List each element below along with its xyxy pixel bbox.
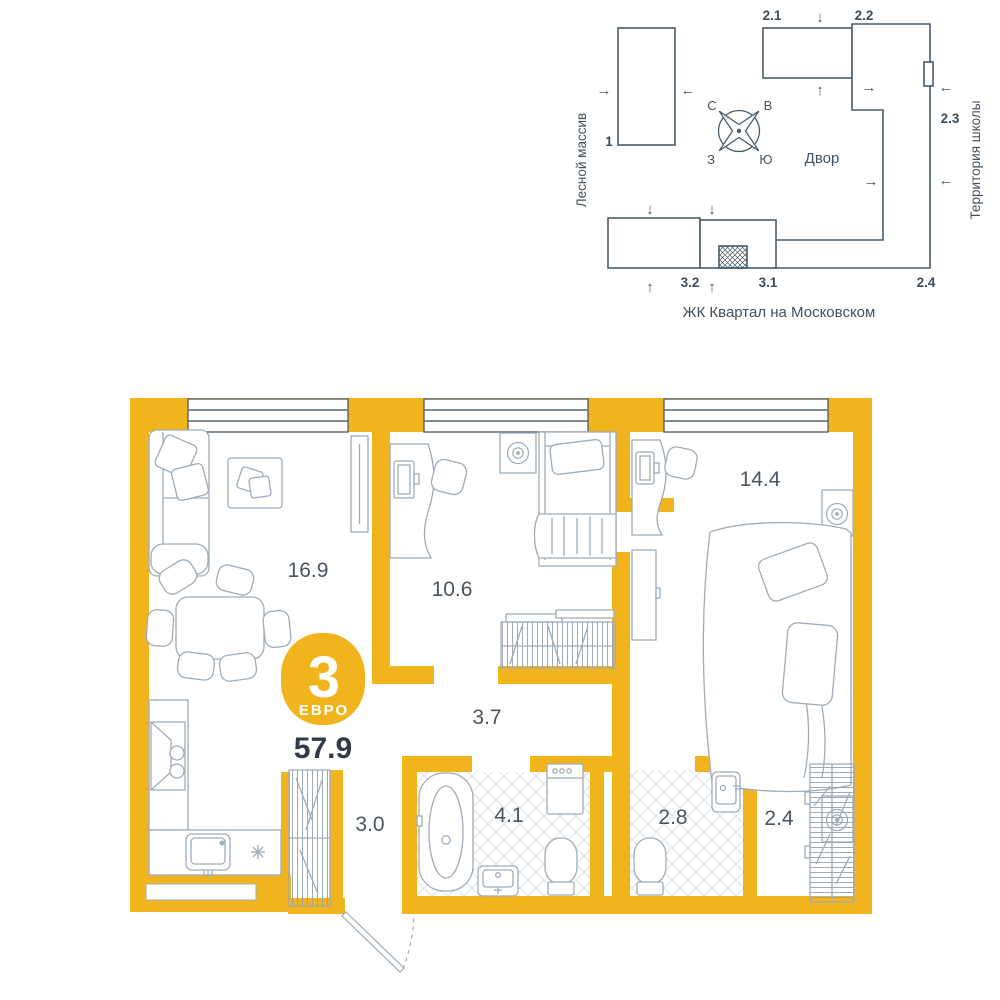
arrow-right-icon: →: [864, 173, 879, 190]
wardrobe-room-furniture: [805, 764, 854, 902]
wardrobe-knob: [805, 792, 810, 804]
dining-chair: [214, 563, 255, 597]
room-label-toilet: 2.8: [658, 806, 687, 829]
bed-pillow: [549, 439, 604, 475]
compass-north: С: [707, 98, 716, 113]
site-label-building-2-1: 2.1: [763, 8, 782, 23]
room-label-wardrobe: 2.4: [764, 807, 794, 830]
monitor-stand: [654, 463, 659, 473]
arrow-right-icon: →: [862, 79, 877, 96]
washing-machine: [547, 764, 583, 814]
wardrobe-track: [556, 610, 614, 618]
arrow-down-icon: ↓: [646, 201, 654, 218]
arrow-left-icon: ←: [939, 79, 954, 96]
wall-bathroom-left: [402, 756, 417, 914]
arrow-down-icon: ↓: [708, 201, 716, 218]
site-label-building-3-2: 3.2: [681, 275, 700, 290]
courtyard-label: Двор: [805, 150, 840, 167]
room-label-bedroom-big: 14.4: [740, 468, 781, 491]
site-label-building-2-3: 2.3: [941, 111, 960, 126]
dining-table: [176, 597, 264, 659]
wall-hallway-bedroom: [612, 552, 630, 914]
desk-chair: [430, 458, 469, 497]
wall-right: [853, 398, 872, 914]
arrow-left-icon: ←: [939, 172, 954, 189]
wall-closet-right: [330, 770, 343, 914]
wall-stub-hallway: [372, 666, 434, 684]
monitor-stand: [414, 474, 419, 484]
floorplan-page: С В З Ю 1 2.1 2.2 2.3 2.4 3.1 3.2 ↓ ↑ → …: [0, 0, 1000, 1000]
sofa-pillow: [171, 463, 210, 502]
wall-closet-pillar: [272, 877, 289, 912]
site-label-building-2-2: 2.2: [855, 8, 874, 23]
desk: [390, 444, 434, 558]
hob-burner: [170, 764, 184, 778]
wardrobe-track: [506, 614, 562, 622]
entrance-door: [342, 912, 414, 972]
door-leaf: [342, 912, 404, 972]
toilet: [545, 838, 577, 895]
cabinet: [632, 550, 660, 640]
sofa: [149, 430, 209, 576]
hall-closet: [289, 770, 330, 906]
bed-blanket: [535, 514, 617, 558]
arrow-left-icon: ←: [681, 82, 696, 99]
school-territory-label: Территория школы: [968, 101, 983, 220]
monitor: [636, 452, 654, 484]
room-label-living: 16.9: [288, 559, 329, 582]
compass-west: З: [707, 152, 715, 167]
windows: [188, 399, 828, 432]
wall-bathroom-top-left: [402, 756, 472, 772]
dining-chair: [218, 652, 257, 683]
desk-chair: [663, 445, 699, 481]
arrow-up-icon: ↑: [816, 82, 824, 99]
badge-room-count: 3: [308, 645, 340, 710]
rug: [228, 458, 282, 508]
compass: [719, 111, 760, 152]
wall-living-divider: [372, 414, 390, 684]
wall-hung-sink: [712, 772, 740, 812]
toilet: [634, 838, 666, 895]
room-label-hall: 3.0: [355, 813, 384, 836]
hob-burner: [170, 746, 184, 760]
total-area-label: 57.9: [294, 732, 352, 765]
double-bed: [703, 523, 851, 792]
bed-pillow: [782, 622, 839, 706]
site-building-hatched-section: [719, 246, 747, 268]
site-building-1: [618, 28, 675, 145]
rug-pillow: [249, 476, 272, 499]
window-bedroom-small: [424, 399, 588, 432]
dining-chair: [177, 651, 216, 681]
bathtub: [417, 773, 473, 891]
compass-center-dot: [737, 129, 741, 133]
rooms-badge: 3 ЕВРО: [281, 633, 365, 725]
bedroom-small-furniture: [390, 432, 616, 668]
bathtub-faucet: [417, 816, 422, 826]
site-label-building-3-1: 3.1: [759, 275, 778, 290]
room-label-hallway: 3.7: [472, 706, 501, 729]
window-living: [188, 399, 348, 432]
window-bedroom-big: [664, 399, 828, 432]
site-building-2-1: [763, 28, 852, 78]
site-label-building-2-4: 2.4: [917, 275, 936, 290]
wardrobe-knob: [805, 846, 810, 858]
forest-label: Лесной массив: [574, 113, 589, 207]
room-label-bathroom: 4.1: [494, 804, 523, 827]
compass-east: В: [764, 98, 773, 113]
desk: [632, 440, 666, 535]
arrow-up-icon: ↑: [708, 279, 716, 296]
wall-bedroom-small-south: [498, 666, 618, 684]
arrow-up-icon: ↑: [646, 279, 654, 296]
site-building-notch: [924, 62, 933, 86]
bathroom-sink: [478, 866, 518, 896]
wall-inset-niche: [146, 884, 256, 900]
wardrobe-unit: [501, 610, 615, 668]
single-bed: [535, 432, 617, 566]
floor-plan: 16.9 10.6 14.4 3.7 3.0 4.1 2.8 2.4 3 ЕВР…: [130, 398, 872, 972]
site-building-3-2: [608, 218, 700, 268]
compass-south: Ю: [759, 152, 772, 167]
wall-left: [130, 398, 149, 912]
tv-stand: [351, 436, 368, 532]
complex-name-caption: ЖК Квартал на Московском: [683, 304, 876, 321]
site-label-building-1: 1: [605, 134, 613, 149]
room-label-bedroom-small: 10.6: [432, 578, 473, 601]
dining-chair: [146, 609, 174, 647]
door-swing-arc: [403, 914, 414, 969]
arrow-down-icon: ↓: [816, 9, 824, 26]
cabinet-knob: [656, 588, 660, 598]
wall-shaft: [590, 756, 604, 914]
site-plan: С В З Ю 1 2.1 2.2 2.3 2.4 3.1 3.2 ↓ ↑ → …: [574, 8, 983, 321]
arrow-right-icon: →: [597, 82, 612, 99]
dining-chair: [262, 610, 292, 649]
badge-layout-type: ЕВРО: [299, 702, 349, 719]
wardrobe-unit: [805, 764, 854, 902]
wall-bottom-right: [415, 896, 872, 914]
stove-symbol: [251, 845, 265, 859]
kitchen: [149, 700, 281, 878]
monitor: [394, 461, 414, 498]
